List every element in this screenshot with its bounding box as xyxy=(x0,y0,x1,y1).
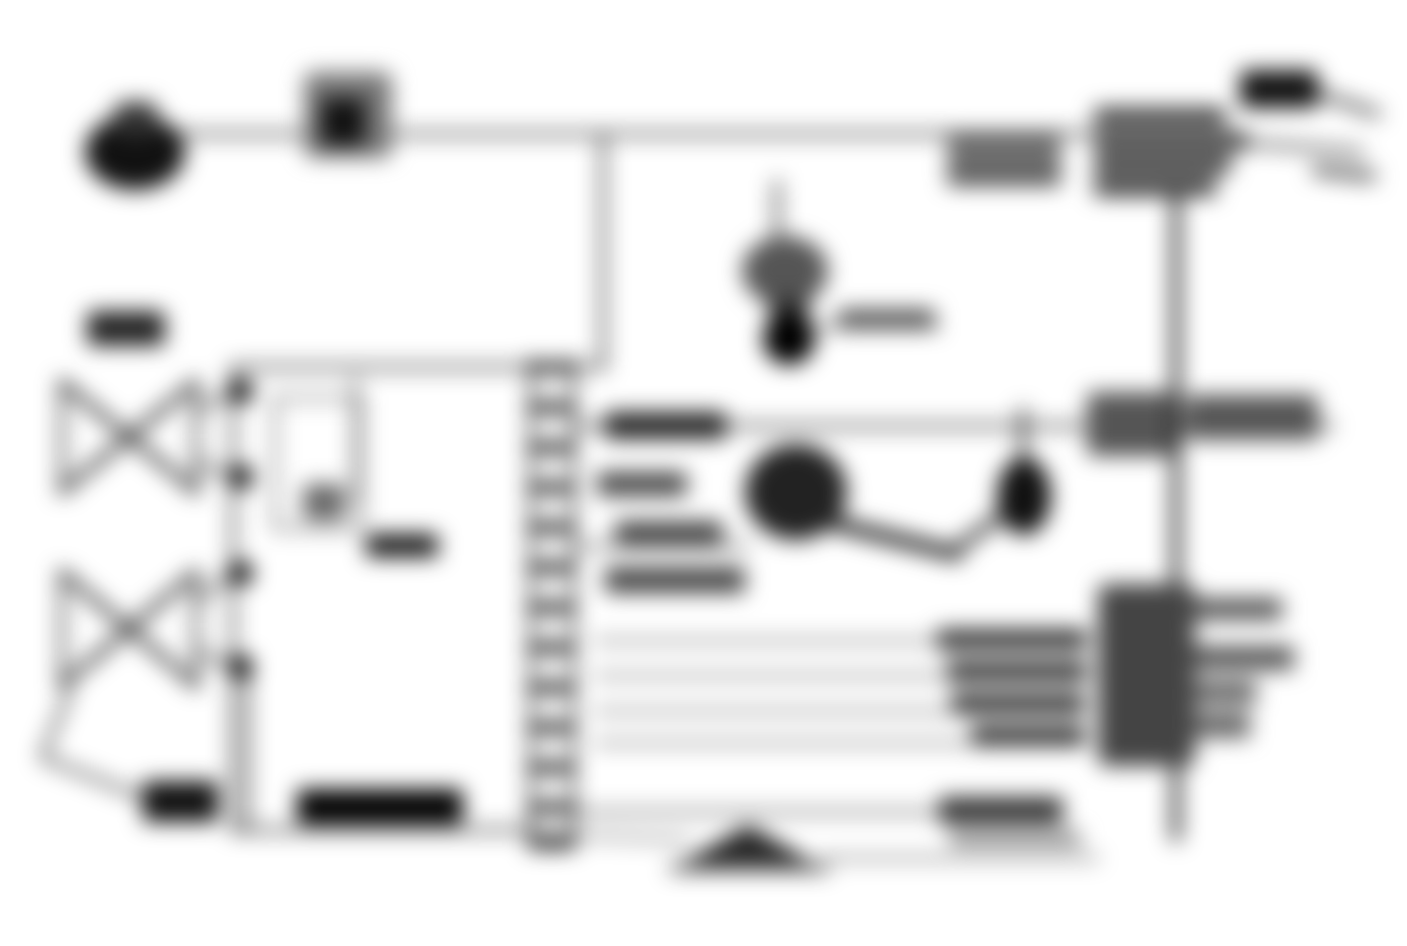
sensor1-stub-b xyxy=(198,462,230,477)
connector-rung xyxy=(528,402,574,413)
diagram-canvas xyxy=(0,0,1407,946)
label-blob xyxy=(838,309,935,326)
label-blob xyxy=(951,693,1085,714)
connector-rung xyxy=(528,762,574,773)
connector-rung xyxy=(528,602,574,613)
component-topright-box xyxy=(1240,70,1318,108)
label-blob xyxy=(615,521,723,547)
label-blob xyxy=(939,797,1063,824)
ecm-inner-dash xyxy=(366,534,438,557)
terminal-dot xyxy=(229,561,253,585)
label-blob xyxy=(1087,392,1172,456)
label-blob xyxy=(947,171,1061,185)
connector-rung xyxy=(528,682,574,693)
connector-rung xyxy=(528,482,574,493)
connector-rung xyxy=(528,442,574,453)
blurred-wiring-diagram-page xyxy=(0,0,1407,946)
component-bulb-tip xyxy=(763,313,815,365)
sensor2-stub-a xyxy=(198,574,230,600)
label-blob xyxy=(971,725,1085,746)
sensor1-stub-a xyxy=(198,392,230,410)
component-module-box xyxy=(1098,584,1195,766)
connector-rung xyxy=(528,562,574,573)
terminal-dot xyxy=(229,655,253,679)
wire-topright-stub xyxy=(1316,170,1372,176)
label-blob xyxy=(1094,155,1231,173)
connector-triangle xyxy=(681,825,815,863)
wire-sensor2-drop-a xyxy=(43,690,70,756)
module-pin-finger xyxy=(1194,598,1282,620)
label-blob xyxy=(1094,108,1226,126)
label-blob xyxy=(1185,395,1318,440)
module-pin-finger xyxy=(1194,680,1256,704)
sensor2-stub-b xyxy=(198,652,230,666)
connector-rung xyxy=(528,802,574,813)
label-blob xyxy=(597,472,687,496)
wire-sensor2-drop-b xyxy=(43,758,145,798)
label-blob xyxy=(605,412,726,439)
component-transistor xyxy=(745,444,847,540)
ecm-inner-blob xyxy=(303,484,345,520)
wire-tail-b xyxy=(952,512,1006,552)
component-switch-core xyxy=(321,98,365,146)
connector-rung xyxy=(528,642,574,653)
terminal-dot xyxy=(229,379,253,403)
component-teardrop xyxy=(997,457,1051,535)
label-blob xyxy=(949,831,1081,846)
connector-rung xyxy=(528,522,574,533)
module-pin-finger xyxy=(1194,646,1294,670)
label-blob xyxy=(1094,178,1216,196)
connector-rung xyxy=(528,838,574,849)
terminal-dot xyxy=(229,465,253,489)
label-blob xyxy=(947,132,1061,146)
component-bulb-body xyxy=(742,236,828,306)
component-coil-top xyxy=(115,102,157,136)
label-blob xyxy=(947,661,1087,682)
label-blob xyxy=(87,311,165,346)
label-blob xyxy=(947,152,1061,166)
wire-topright-extension xyxy=(1238,142,1362,152)
module-pin-finger xyxy=(1194,712,1250,738)
label-blob xyxy=(605,567,745,593)
connector-rung xyxy=(528,722,574,733)
label-blob xyxy=(937,629,1087,650)
wire-tail-a xyxy=(836,524,956,554)
wire-topright-diagonal xyxy=(1313,92,1378,114)
ecm-bottom-bar xyxy=(297,789,463,824)
label-blob xyxy=(1094,132,1248,150)
ground-box xyxy=(143,781,218,822)
connector-rung xyxy=(528,362,574,373)
